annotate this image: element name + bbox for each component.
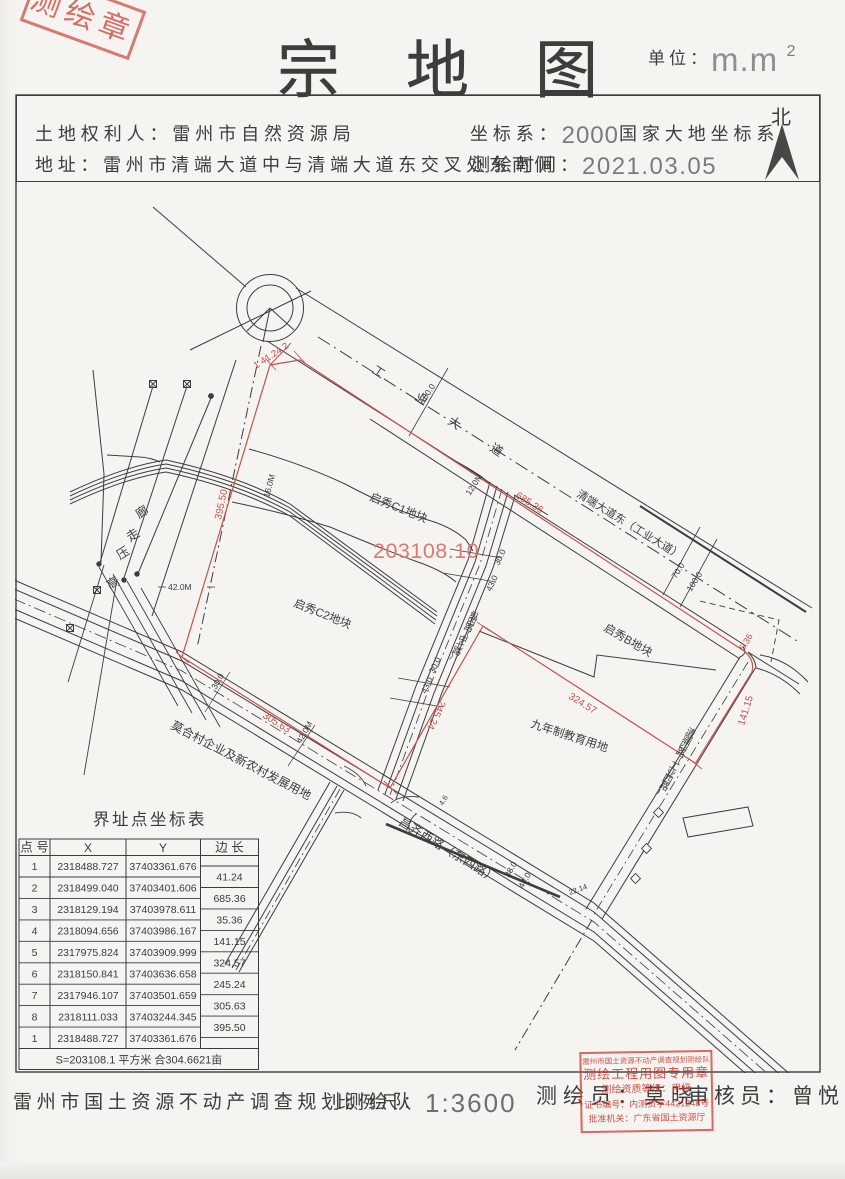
svg-text:395.50: 395.50	[213, 1022, 245, 1034]
svg-text:昌齐西路（东四路）: 昌齐西路（东四路）	[396, 814, 500, 886]
svg-text:4.6: 4.6	[437, 793, 450, 807]
svg-text:2318488.727: 2318488.727	[57, 861, 118, 873]
svg-text:685.36: 685.36	[213, 893, 245, 905]
svg-text:启秀C1地块: 启秀C1地块	[368, 491, 430, 526]
svg-text:30.0: 30.0	[492, 547, 508, 566]
svg-text:245.24: 245.24	[424, 699, 447, 732]
svg-text:大: 大	[445, 414, 463, 433]
svg-text:70.0: 70.0	[669, 561, 687, 581]
svg-text:12.0M: 12.0M	[463, 472, 484, 497]
svg-text:道: 道	[487, 441, 506, 460]
svg-text:37403986.167: 37403986.167	[129, 926, 196, 938]
svg-text:3: 3	[32, 904, 38, 916]
svg-text:启秀B地块: 启秀B地块	[602, 621, 655, 659]
svg-text:界址点坐标表: 界址点坐标表	[93, 810, 207, 829]
svg-text:4: 4	[32, 926, 38, 938]
svg-text:43.0: 43.0	[419, 675, 435, 694]
svg-text:37403361.676: 37403361.676	[129, 1033, 196, 1045]
svg-text:37403361.676: 37403361.676	[129, 861, 196, 873]
svg-text:16.0M: 16.0M	[261, 473, 277, 498]
svg-text:2318129.194: 2318129.194	[57, 904, 118, 916]
svg-text:2318111.033: 2318111.033	[58, 1011, 118, 1023]
svg-text:九年制教育用地: 九年制教育用地	[529, 717, 610, 755]
svg-text:X: X	[84, 841, 92, 855]
svg-text:37403636.658: 37403636.658	[129, 969, 196, 981]
svg-text:点 号: 点 号	[20, 841, 48, 855]
svg-text:30.0: 30.0	[427, 655, 443, 674]
svg-text:37403978.611: 37403978.611	[130, 904, 197, 916]
svg-text:2318150.841: 2318150.841	[57, 969, 118, 981]
svg-text:141.15: 141.15	[213, 936, 245, 948]
svg-text:324.57: 324.57	[213, 958, 245, 970]
svg-text:S=203108.1 平方米 合304.6621亩: S=203108.1 平方米 合304.6621亩	[56, 1053, 223, 1067]
svg-text:37403501.659: 37403501.659	[129, 990, 196, 1002]
svg-text:2318094.656: 2318094.656	[57, 926, 118, 938]
svg-text:203108.10: 203108.10	[373, 539, 479, 563]
svg-text:2317946.107: 2317946.107	[57, 990, 118, 1002]
svg-text:245.24: 245.24	[213, 979, 245, 991]
svg-text:1: 1	[32, 861, 38, 873]
svg-text:324.57: 324.57	[566, 691, 598, 717]
svg-text:8: 8	[32, 1011, 38, 1023]
svg-text:1: 1	[32, 1033, 38, 1045]
svg-text:305.63: 305.63	[213, 1000, 245, 1012]
svg-text:43.0: 43.0	[484, 573, 500, 592]
svg-text:42.0M: 42.0M	[294, 720, 314, 745]
svg-text:2318499.040: 2318499.040	[57, 883, 118, 895]
svg-text:5.36: 5.36	[737, 632, 755, 652]
svg-text:22.14: 22.14	[568, 882, 589, 897]
svg-text:5: 5	[32, 947, 38, 959]
svg-text:42.0M: 42.0M	[168, 582, 192, 592]
svg-text:6: 6	[32, 969, 38, 981]
svg-text:7: 7	[32, 990, 38, 1002]
svg-text:30.0: 30.0	[209, 671, 226, 691]
svg-text:边 长: 边 长	[215, 841, 244, 855]
svg-text:100.0: 100.0	[684, 570, 704, 594]
svg-text:启秀C2地块: 启秀C2地块	[292, 597, 354, 632]
svg-text:）: ）	[448, 651, 460, 664]
svg-text:Y: Y	[159, 841, 167, 855]
svg-text:压: 压	[114, 544, 132, 563]
svg-text:2317975.824: 2317975.824	[57, 947, 118, 959]
svg-text:37403401.606: 37403401.606	[129, 883, 196, 895]
svg-text:38.0: 38.0	[502, 859, 519, 879]
svg-text:1 41.24 2: 1 41.24 2	[252, 341, 291, 372]
svg-text:2318488.727: 2318488.727	[57, 1033, 118, 1045]
svg-text:35.36: 35.36	[216, 915, 242, 927]
svg-text:工: 工	[369, 363, 387, 382]
svg-text:高: 高	[103, 573, 122, 592]
svg-text:41.24: 41.24	[216, 872, 242, 884]
svg-text:37403244.345: 37403244.345	[129, 1011, 196, 1023]
svg-text:37403909.999: 37403909.999	[129, 947, 196, 959]
svg-text:2: 2	[32, 883, 38, 895]
svg-text:100.0: 100.0	[417, 382, 437, 406]
svg-text:141.15: 141.15	[736, 694, 756, 727]
